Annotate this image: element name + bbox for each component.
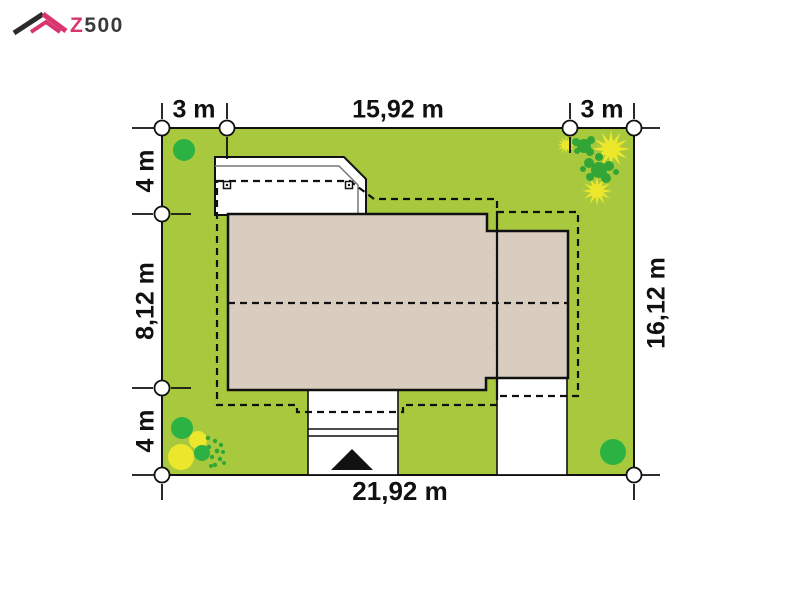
tree-icon — [194, 445, 210, 461]
marker-circle — [155, 381, 170, 396]
driveway — [497, 378, 567, 475]
dim-top-center: 15,92 m — [352, 98, 444, 123]
dim-top-right: 3 m — [580, 98, 623, 123]
marker-circle — [155, 468, 170, 483]
marker-circle — [155, 121, 170, 136]
dim-left-top: 4 m — [134, 149, 159, 192]
site-plan-drawing — [0, 0, 800, 600]
tree-icon — [600, 439, 626, 465]
dim-right: 16,12 m — [645, 257, 670, 349]
tree-icon — [173, 139, 195, 161]
marker-circle — [627, 121, 642, 136]
dim-left-bottom: 4 m — [134, 409, 159, 452]
marker-circle — [627, 468, 642, 483]
dim-bottom: 21,92 m — [352, 478, 447, 504]
marker-circle — [155, 207, 170, 222]
marker-circle — [220, 121, 235, 136]
site-plan-canvas: Z500 — [0, 0, 800, 600]
tree-icon — [171, 417, 193, 439]
marker-circle — [563, 121, 578, 136]
terrace — [215, 157, 366, 215]
yellow-bush-icon — [168, 444, 194, 470]
dim-top-left: 3 m — [172, 98, 215, 123]
dim-left-middle: 8,12 m — [134, 262, 159, 340]
